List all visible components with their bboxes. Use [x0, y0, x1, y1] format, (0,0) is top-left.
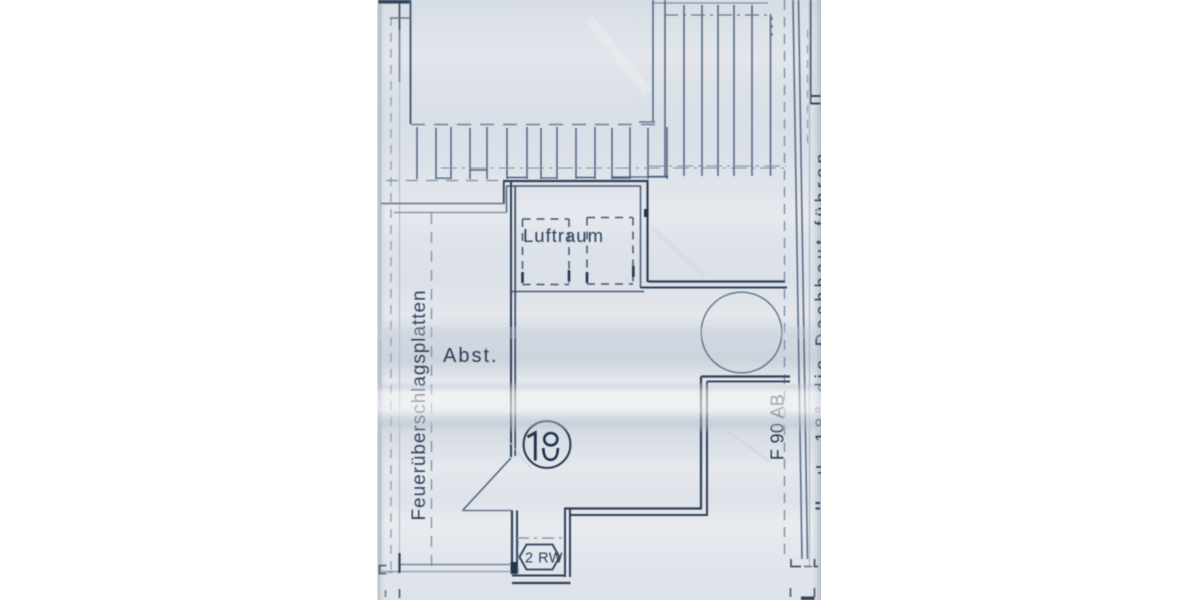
svg-text:Abst.: Abst.: [443, 345, 499, 367]
svg-text:2 RW: 2 RW: [525, 551, 563, 567]
svg-text:Luftraum: Luftraum: [523, 225, 604, 246]
